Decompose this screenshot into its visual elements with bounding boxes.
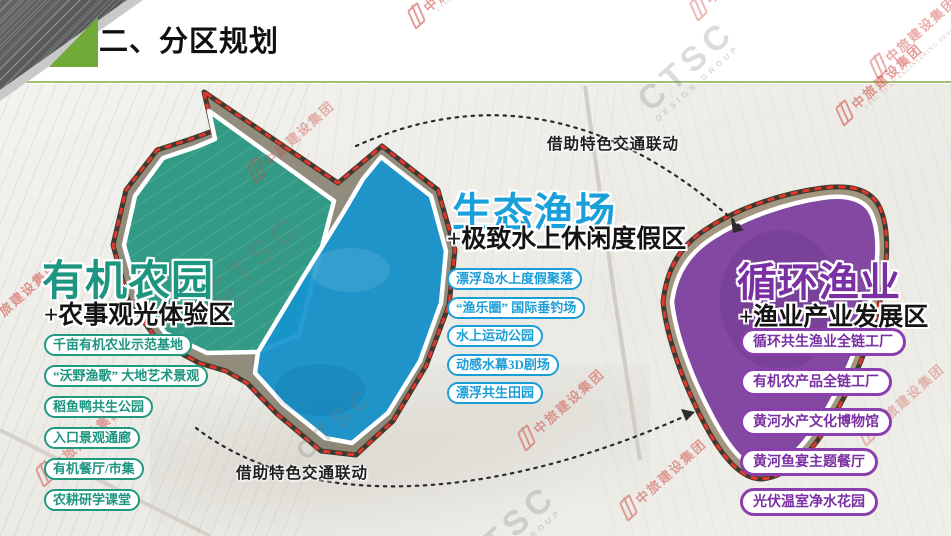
- zone-item-list-organic-farm: 千亩有机农业示范基地“沃野渔歌” 大地艺术景观稻鱼鸭共生公园入口景观通廊有机餐厅…: [44, 334, 208, 520]
- zone-item-pill: 黄河水产文化博物馆: [740, 408, 892, 436]
- zone-item-pill: 循环共生渔业全链工厂: [740, 328, 906, 356]
- zone-item-pill: 入口景观通廊: [44, 427, 140, 449]
- transport-label-top: 借助特色交通联动: [547, 132, 679, 154]
- page-title: 二、分区规划: [99, 18, 279, 60]
- zone-item-list-eco-fishery: 漂浮岛水上度假聚落“渔乐圈” 国际垂钓场水上运动公园动感水幕3D剧场漂浮共生田园: [447, 268, 585, 411]
- zone-item-pill: 农耕研学课堂: [44, 489, 140, 511]
- zone-item-pill: 光伏温室净水花园: [740, 488, 878, 516]
- zone-item-pill: 黄河鱼宴主题餐厅: [740, 448, 878, 476]
- zone-item-pill: 有机餐厅/市集: [44, 458, 144, 480]
- zone-item-pill: 漂浮岛水上度假聚落: [447, 268, 582, 290]
- zone-item-pill: “渔乐圈” 国际垂钓场: [447, 297, 585, 319]
- zone-item-pill: 稻鱼鸭共生公园: [44, 396, 153, 418]
- zone-item-list-circular-fishery: 循环共生渔业全链工厂有机农产品全链工厂黄河水产文化博物馆黄河鱼宴主题餐厅光伏温室…: [740, 328, 906, 528]
- zone-item-pill: 水上运动公园: [447, 325, 543, 347]
- transport-label-bottom: 借助特色交通联动: [236, 461, 368, 483]
- zone-subtitle-organic-farm: +农事观光体验区: [44, 295, 233, 331]
- zone-item-pill: 千亩有机农业示范基地: [44, 334, 192, 356]
- slide: 中旅建设集团CTSC XI'AN ENGINEERING DESIGN GROU…: [0, 0, 951, 536]
- header-underline: [0, 81, 951, 83]
- zone-item-pill: 动感水幕3D剧场: [447, 354, 559, 376]
- arrowhead-icon: [681, 409, 695, 421]
- zone-subtitle-eco-fishery: +极致水上休闲度假区: [447, 219, 686, 255]
- zone-item-pill: 有机农产品全链工厂: [740, 368, 892, 396]
- zone-item-pill: 漂浮共生田园: [447, 382, 543, 404]
- zone-item-pill: “沃野渔歌” 大地艺术景观: [44, 365, 208, 387]
